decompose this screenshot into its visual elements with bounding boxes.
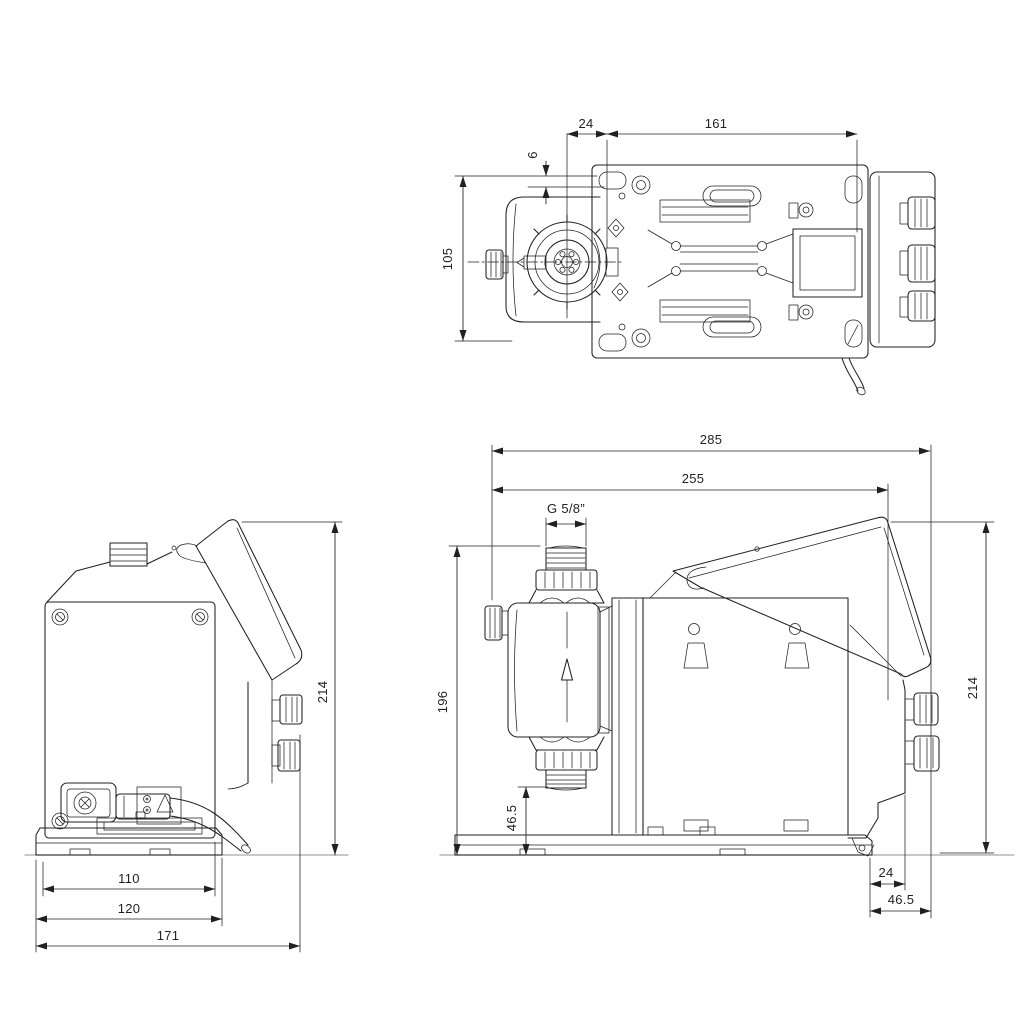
flow-direction-arrow	[562, 659, 573, 680]
power-cable	[842, 358, 858, 391]
dim-label-196: 196	[435, 691, 450, 714]
socket-knob-3	[908, 291, 935, 321]
bleed-knob-side-view	[485, 606, 502, 640]
dim-label-thread: G 5/8”	[547, 501, 585, 516]
dim-label-46-5-valve: 46.5	[504, 805, 519, 832]
rear-knob-2	[278, 740, 300, 771]
side-view-housing	[600, 572, 848, 835]
dim-label-24-side: 24	[878, 865, 893, 880]
dim-label-214-side: 214	[965, 677, 980, 700]
dim-label-24-top: 24	[578, 116, 593, 131]
plate-module	[793, 229, 862, 297]
socket-knob-1	[908, 197, 935, 229]
hose-barb	[517, 256, 546, 269]
dim-label-214-rear: 214	[315, 681, 330, 704]
top-view: 24 161 6 105	[440, 116, 935, 396]
wall-mount-keyholes	[684, 643, 809, 668]
socket-knob-2	[908, 245, 935, 282]
rear-view: 214 110 120 171	[25, 520, 348, 952]
dim-label-105: 105	[440, 248, 455, 271]
warning-label-plate	[137, 787, 181, 824]
dim-label-110: 110	[118, 871, 140, 886]
rear-view-control-panel	[172, 520, 302, 789]
dim-label-161: 161	[705, 116, 728, 131]
dim-label-46-5-rear: 46.5	[888, 892, 915, 907]
top-view-pump-head	[468, 134, 622, 322]
rear-view-dimensions: 214 110 120 171	[36, 522, 342, 952]
top-view-control-end	[842, 172, 935, 396]
pump-head-body	[508, 603, 600, 737]
dim-label-6: 6	[525, 151, 540, 159]
rear-mount-bracket	[848, 793, 905, 838]
rear-view-back-panel	[45, 602, 215, 838]
top-view-mounting-plate	[592, 165, 868, 358]
side-knob-2	[914, 736, 939, 771]
pump-dimensional-drawing: 24 161 6 105	[0, 0, 1024, 1024]
rear-view-top-fitting	[47, 543, 172, 602]
bleed-knob-top-view	[486, 250, 503, 279]
rear-knob-1	[280, 695, 302, 724]
clamp-band	[612, 598, 643, 835]
dim-label-285: 285	[700, 432, 723, 447]
suction-thread	[546, 770, 586, 788]
discharge-thread	[546, 548, 586, 570]
side-view-dosing-head	[485, 546, 609, 790]
dim-label-120: 120	[118, 901, 141, 916]
rear-view-cable-assembly	[61, 783, 252, 855]
housing-front-face	[643, 598, 848, 835]
side-view-control-panel	[673, 517, 939, 856]
side-view: 285 255 G 5/8” 196 46.5 214 24 46.5	[435, 432, 1014, 918]
dim-label-171: 171	[157, 928, 180, 943]
dimensional-drawing-page: 24 161 6 105	[0, 0, 1024, 1024]
dim-label-255: 255	[682, 471, 705, 486]
